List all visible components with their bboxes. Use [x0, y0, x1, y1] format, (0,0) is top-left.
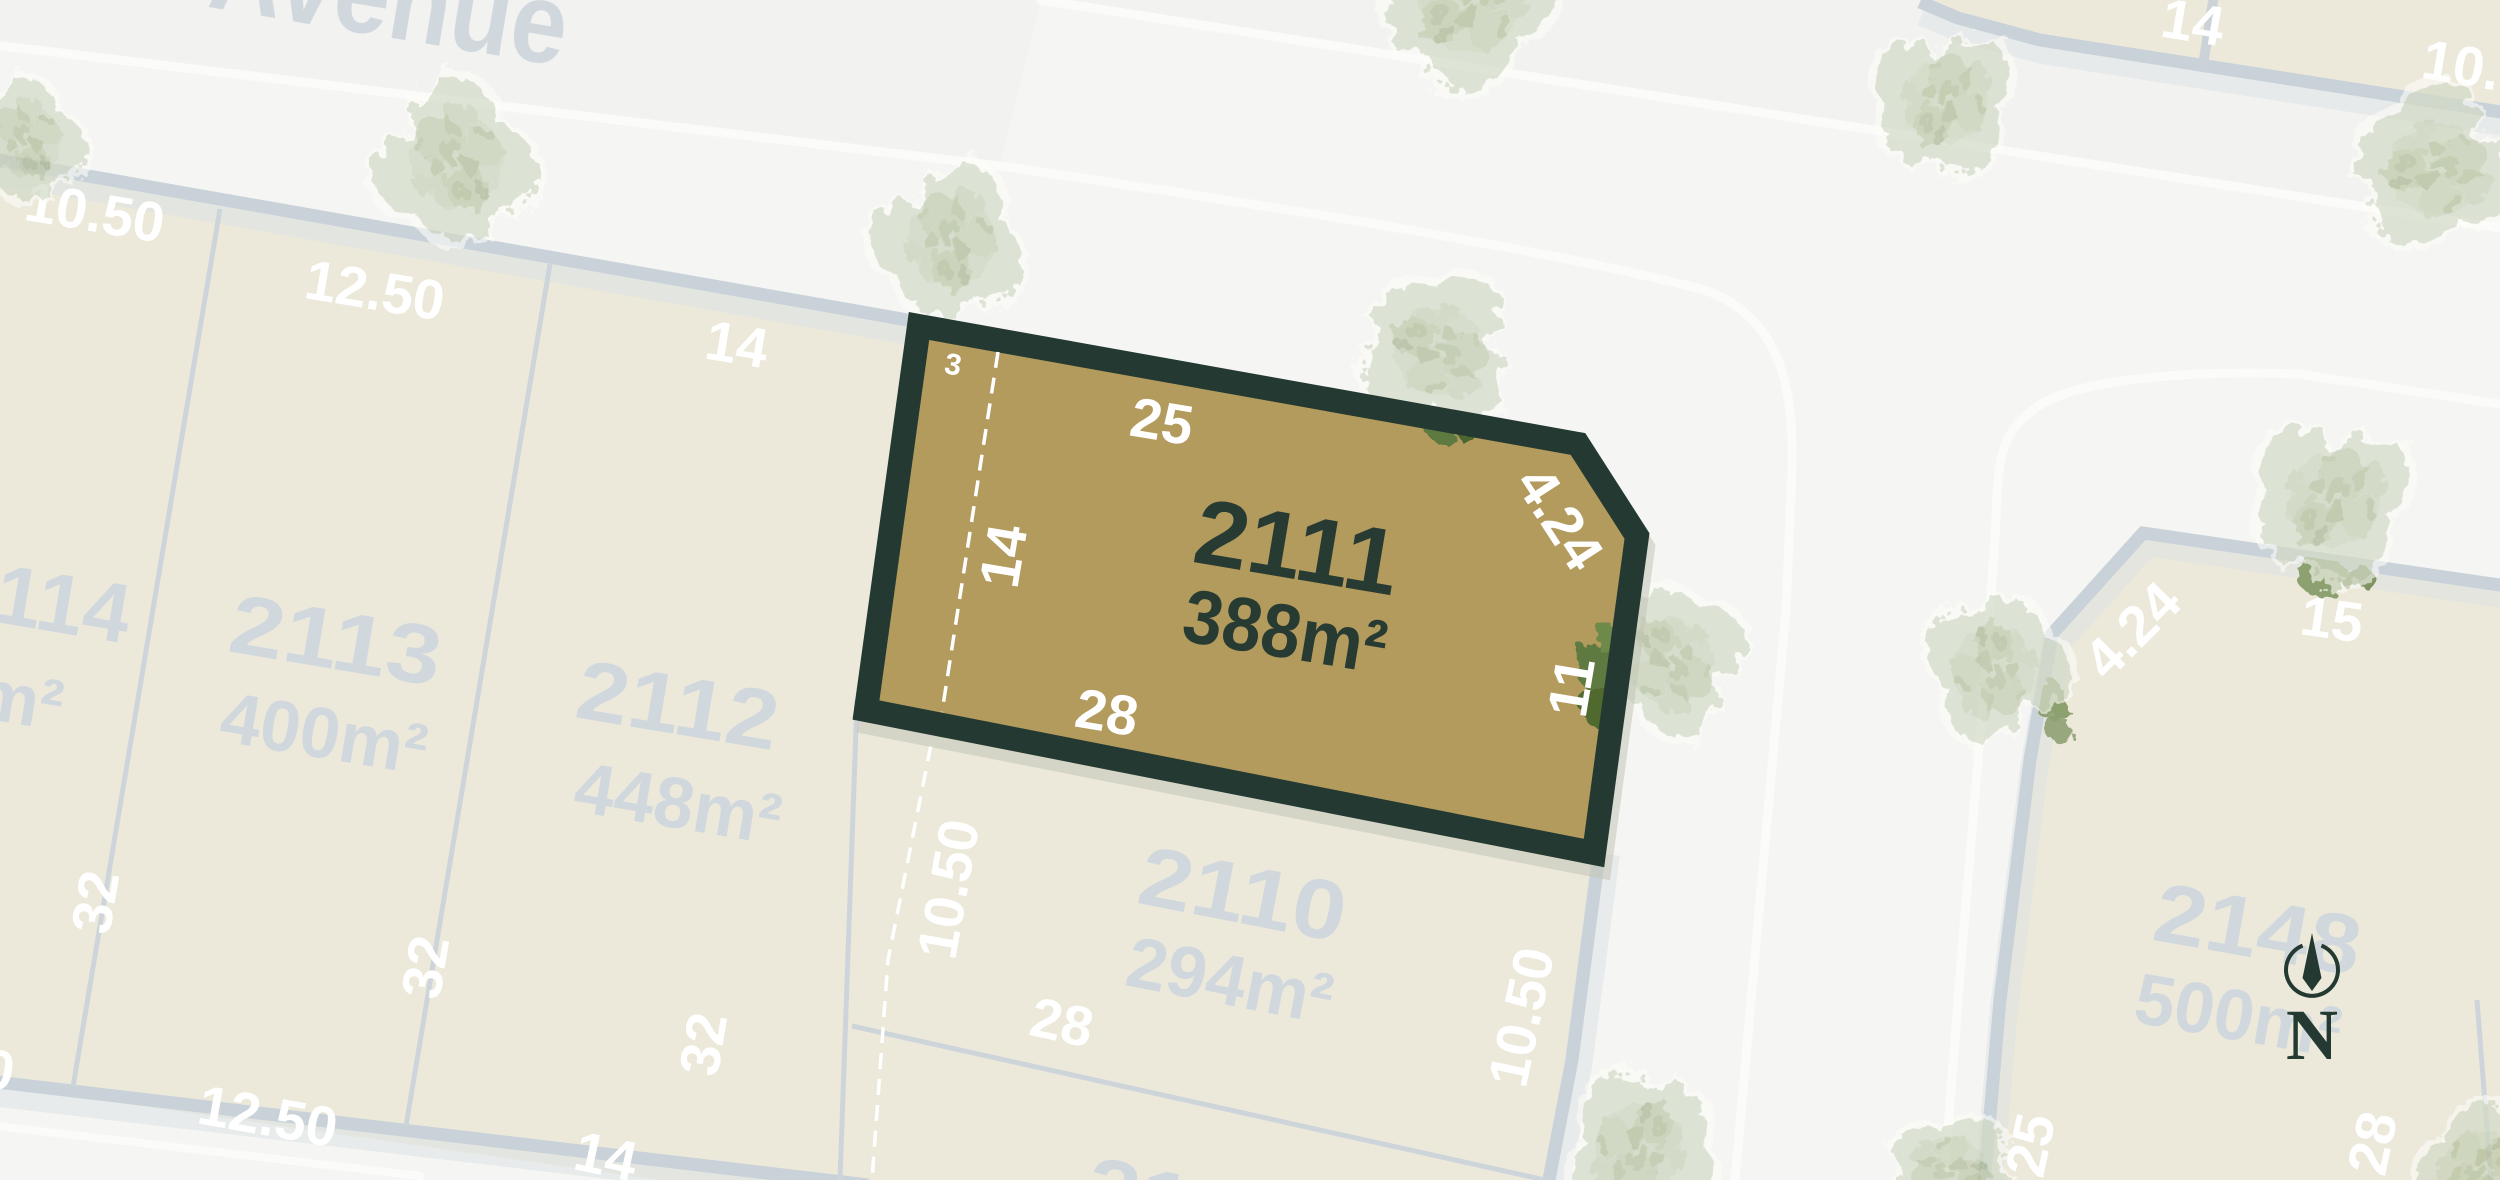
svg-text:14: 14	[701, 308, 773, 380]
svg-text:15: 15	[2297, 583, 2367, 654]
svg-text:14: 14	[2157, 0, 2229, 58]
svg-text:32: 32	[59, 866, 131, 938]
svg-text:28: 28	[2335, 1106, 2410, 1180]
svg-text:28: 28	[1071, 676, 1143, 748]
svg-text:32: 32	[389, 931, 461, 1003]
svg-text:25: 25	[1126, 385, 1198, 457]
svg-text:11: 11	[1535, 653, 1607, 722]
svg-text:14: 14	[967, 520, 1039, 592]
svg-text:28: 28	[1025, 985, 1099, 1060]
svg-text:32: 32	[667, 1008, 739, 1080]
svg-text:N: N	[2286, 995, 2338, 1075]
